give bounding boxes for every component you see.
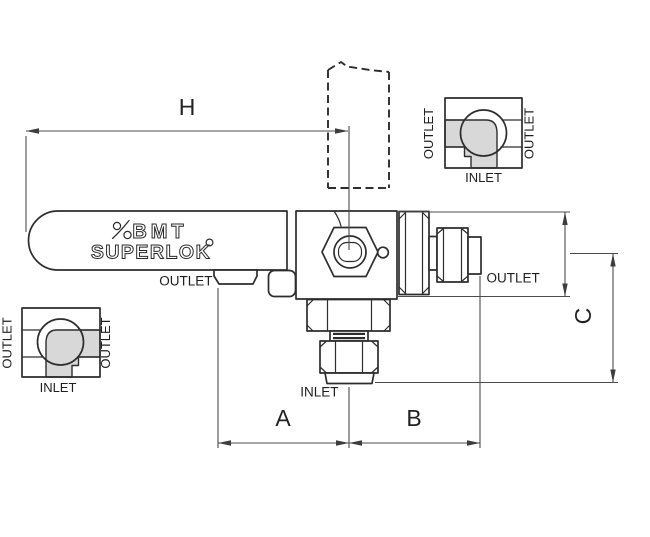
stop-pin [378,247,389,258]
valve-technical-drawing: BMT SUPERLOK [0,0,650,537]
schematic-right-outlet-label: OUTLET [522,108,537,159]
schematic-inlet-label: INLET [465,170,502,185]
flow-path [445,120,497,168]
left-outlet-label: OUTLET [159,274,212,289]
flow-path [46,330,100,377]
flow-schematic-bottom-left: OUTLET OUTLET INLET [0,308,113,395]
schematic-inlet-label: INLET [40,380,77,395]
bottom-inlet-fitting [307,300,390,384]
schematic-left-outlet-label: OUTLET [421,108,436,159]
bottom-inlet-label: INLET [300,385,338,400]
left-outlet-port [214,270,257,284]
right-outlet-fitting [399,212,481,295]
brand-sub-name: SUPERLOK [91,242,211,264]
dimension-c-label: C [570,308,596,325]
schematic-right-outlet-label: OUTLET [98,317,113,368]
valve-handle: BMT SUPERLOK [29,211,287,270]
right-outlet-label: OUTLET [487,271,540,286]
dimension-a-label: A [275,405,291,431]
flow-schematic-top-right: OUTLET OUTLET INLET [421,98,537,185]
schematic-left-outlet-label: OUTLET [0,317,15,368]
handle-alternate-position-dashed [328,62,389,188]
dimension-h-label: H [179,94,196,120]
brand-name: BMT [132,221,187,243]
dimension-b-label: B [406,405,421,431]
body-lug [269,271,296,297]
